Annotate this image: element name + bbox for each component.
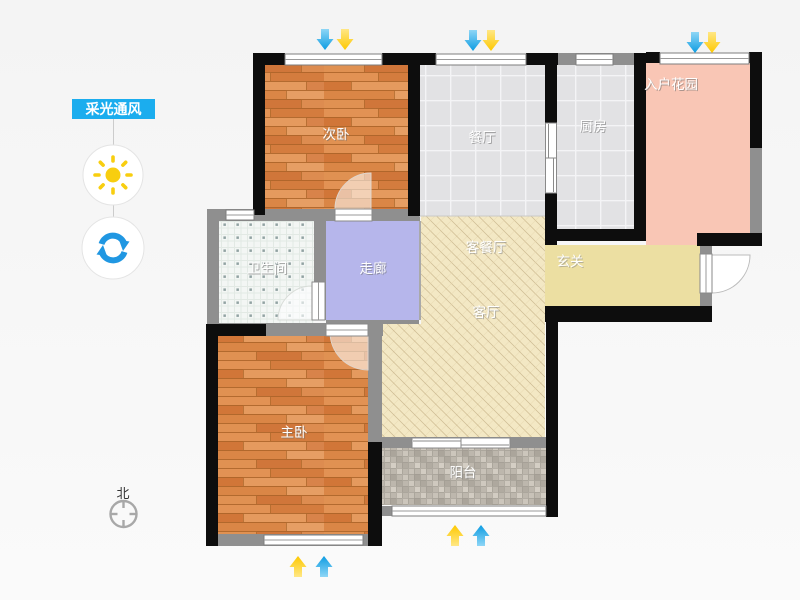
- svg-text:次卧: 次卧: [323, 127, 350, 142]
- svg-text:入户花园: 入户花园: [644, 76, 698, 92]
- svg-text:厨房: 厨房: [580, 119, 607, 134]
- svg-text:餐厅: 餐厅: [469, 130, 496, 145]
- svg-text:走廊: 走廊: [360, 260, 387, 276]
- svg-text:北: 北: [116, 486, 129, 501]
- svg-text:主卧: 主卧: [281, 425, 308, 440]
- svg-text:客餐厅: 客餐厅: [466, 239, 507, 255]
- svg-text:玄关: 玄关: [557, 253, 584, 269]
- svg-text:阳台: 阳台: [450, 465, 477, 480]
- svg-text:卫生间: 卫生间: [247, 261, 288, 276]
- svg-text:客厅: 客厅: [473, 304, 500, 320]
- svg-text:采光通风: 采光通风: [85, 101, 142, 117]
